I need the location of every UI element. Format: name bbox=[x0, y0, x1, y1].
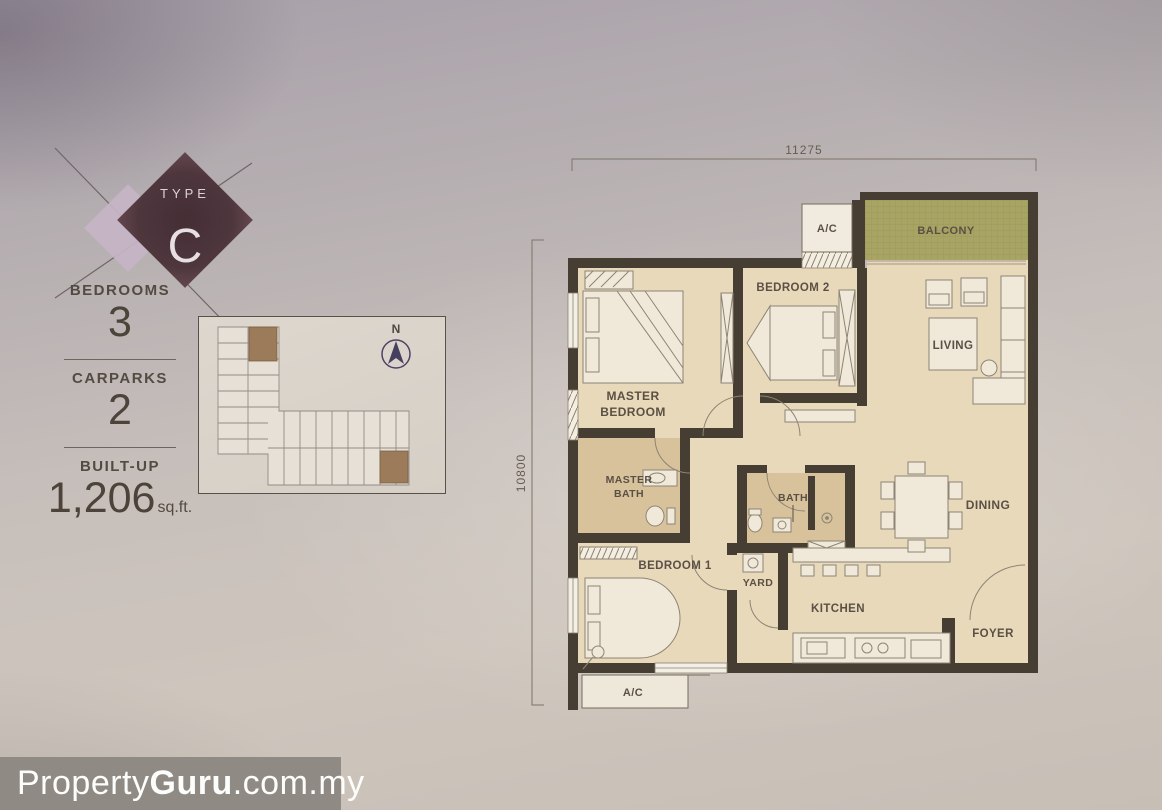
builtup-unit: sq.ft. bbox=[157, 499, 192, 516]
dimension-top-value: 11275 bbox=[785, 143, 822, 157]
master-bed bbox=[583, 291, 683, 383]
dimension-left: 10800 bbox=[514, 240, 544, 705]
bedroom2-wardrobe bbox=[839, 290, 855, 386]
bench bbox=[585, 271, 633, 289]
master-wardrobe bbox=[580, 547, 637, 559]
ac-ledge-bottom bbox=[582, 675, 710, 708]
dimension-left-value: 10800 bbox=[514, 454, 528, 492]
room-label-bedroom2: BEDROOM 2 bbox=[756, 282, 829, 294]
spec-bedrooms: BEDROOMS 3 bbox=[30, 272, 210, 346]
spec-carparks: CARPARKS 2 bbox=[30, 360, 210, 434]
room-label-ac-bottom: A/C bbox=[623, 687, 643, 699]
key-plan-unit-highlight-top bbox=[249, 327, 277, 361]
bath-toilet bbox=[748, 509, 762, 532]
badge-type-label: TYPE bbox=[160, 186, 210, 201]
room-label-ac-top: A/C bbox=[817, 223, 837, 235]
spec-list: BEDROOMS 3 CARPARKS 2 BUILT-UP 1,206sq.f… bbox=[30, 272, 210, 531]
washer bbox=[743, 554, 763, 572]
room-label-master-bath-1: MASTER bbox=[606, 474, 653, 486]
north-arrow-icon bbox=[388, 341, 404, 364]
spec-builtup: BUILT-UP 1,206sq.ft. bbox=[30, 448, 210, 531]
spec-carparks-value: 2 bbox=[30, 387, 210, 434]
watermark-bar: PropertyGuru.com.my bbox=[0, 757, 341, 810]
builtup-number: 1,206 bbox=[48, 474, 156, 522]
room-label-master-bath-2: BATH bbox=[614, 488, 644, 500]
wardrobe-slider bbox=[721, 293, 733, 383]
bath-sink bbox=[773, 518, 791, 532]
master-bath-toilet bbox=[646, 506, 675, 526]
room-label-living: LIVING bbox=[933, 340, 974, 352]
kitchen-counter-bottom bbox=[793, 633, 950, 663]
key-plan-unit-highlight-right bbox=[380, 451, 408, 483]
spec-bedrooms-label: BEDROOMS bbox=[30, 282, 210, 299]
key-plan: N bbox=[198, 316, 446, 494]
room-label-yard: YARD bbox=[743, 577, 773, 589]
room-label-dining: DINING bbox=[966, 498, 1010, 512]
floor-plan: 11275 10800 bbox=[505, 128, 1075, 728]
spec-bedrooms-value: 3 bbox=[30, 299, 210, 346]
spec-builtup-value: 1,206sq.ft. bbox=[30, 475, 210, 531]
compass: N bbox=[382, 322, 410, 368]
room-label-bath: BATH bbox=[778, 492, 808, 504]
louver-window bbox=[802, 252, 852, 268]
watermark-brand-regular: Property bbox=[17, 764, 150, 803]
brochure-page: TYPE C BEDROOMS 3 CARPARKS 2 BUILT-UP 1,… bbox=[0, 0, 1162, 810]
badge-type-value: C bbox=[168, 220, 203, 273]
spec-builtup-label: BUILT-UP bbox=[30, 458, 210, 475]
compass-label: N bbox=[392, 322, 401, 336]
dimension-top: 11275 bbox=[572, 143, 1036, 171]
watermark-brand-bold: Guru bbox=[150, 764, 233, 803]
room-label-master-1: MASTER bbox=[606, 389, 659, 403]
hall-console bbox=[785, 410, 855, 422]
room-label-bedroom1: BEDROOM 1 bbox=[638, 560, 711, 572]
room-label-kitchen: KITCHEN bbox=[811, 603, 865, 615]
room-label-balcony: BALCONY bbox=[917, 225, 974, 237]
spec-carparks-label: CARPARKS bbox=[30, 370, 210, 387]
room-label-foyer: FOYER bbox=[972, 628, 1014, 640]
watermark-domain-suffix: .com.my bbox=[233, 764, 365, 803]
room-label-master-2: BEDROOM bbox=[600, 405, 665, 419]
